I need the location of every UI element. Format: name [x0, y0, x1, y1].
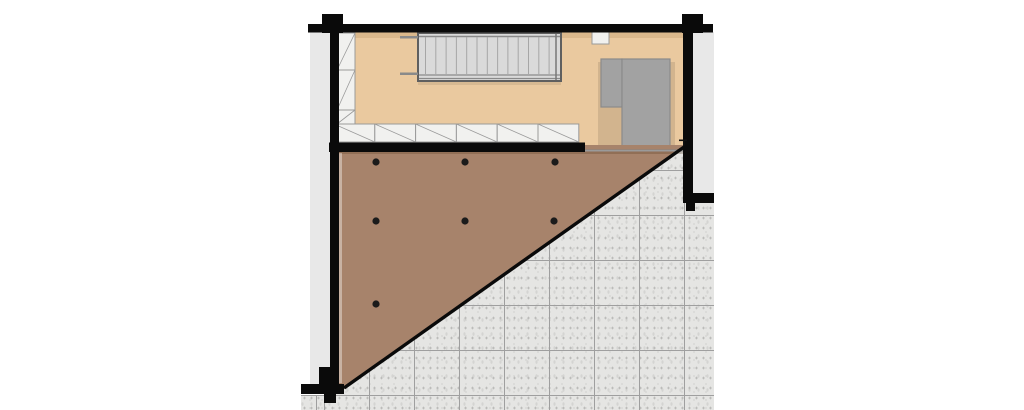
staircase	[400, 33, 561, 85]
deck-dot	[461, 158, 468, 165]
stair-handrail-stub-top	[400, 36, 418, 39]
deck-triangle	[337, 145, 684, 389]
exterior-strip-left	[310, 31, 330, 384]
deck-dot	[372, 217, 379, 224]
cabinet-column-left	[337, 33, 355, 124]
wall-middle-divider	[329, 143, 585, 153]
wall-bottom-left-stub	[324, 394, 336, 403]
furniture-cabinet-small	[601, 59, 622, 107]
wall-right	[683, 31, 693, 194]
column-top-right	[682, 14, 703, 33]
cabinet-row-bottom	[334, 124, 579, 142]
deck-dot	[372, 300, 379, 307]
deck-dot	[461, 217, 468, 224]
column-top-left	[322, 14, 343, 33]
deck-edge-highlight	[339, 153, 342, 383]
wall-top	[308, 24, 713, 33]
exterior-strip-right	[693, 32, 714, 193]
floor-plan-drawing	[0, 0, 1024, 410]
floor-plan-canvas	[0, 0, 1024, 410]
deck-dot	[550, 217, 557, 224]
wall-right-foot-stub	[686, 203, 695, 211]
deck-dot	[551, 158, 558, 165]
wall-niche	[592, 32, 609, 44]
stair-body	[418, 33, 561, 81]
wall-left	[330, 31, 339, 388]
wall-right-foot	[683, 193, 714, 203]
furniture-cabinet-large	[622, 59, 670, 150]
stair-handrail-stub-bottom	[400, 73, 418, 76]
wall-bottom-left-foot	[301, 384, 344, 394]
deck-dot	[372, 158, 379, 165]
